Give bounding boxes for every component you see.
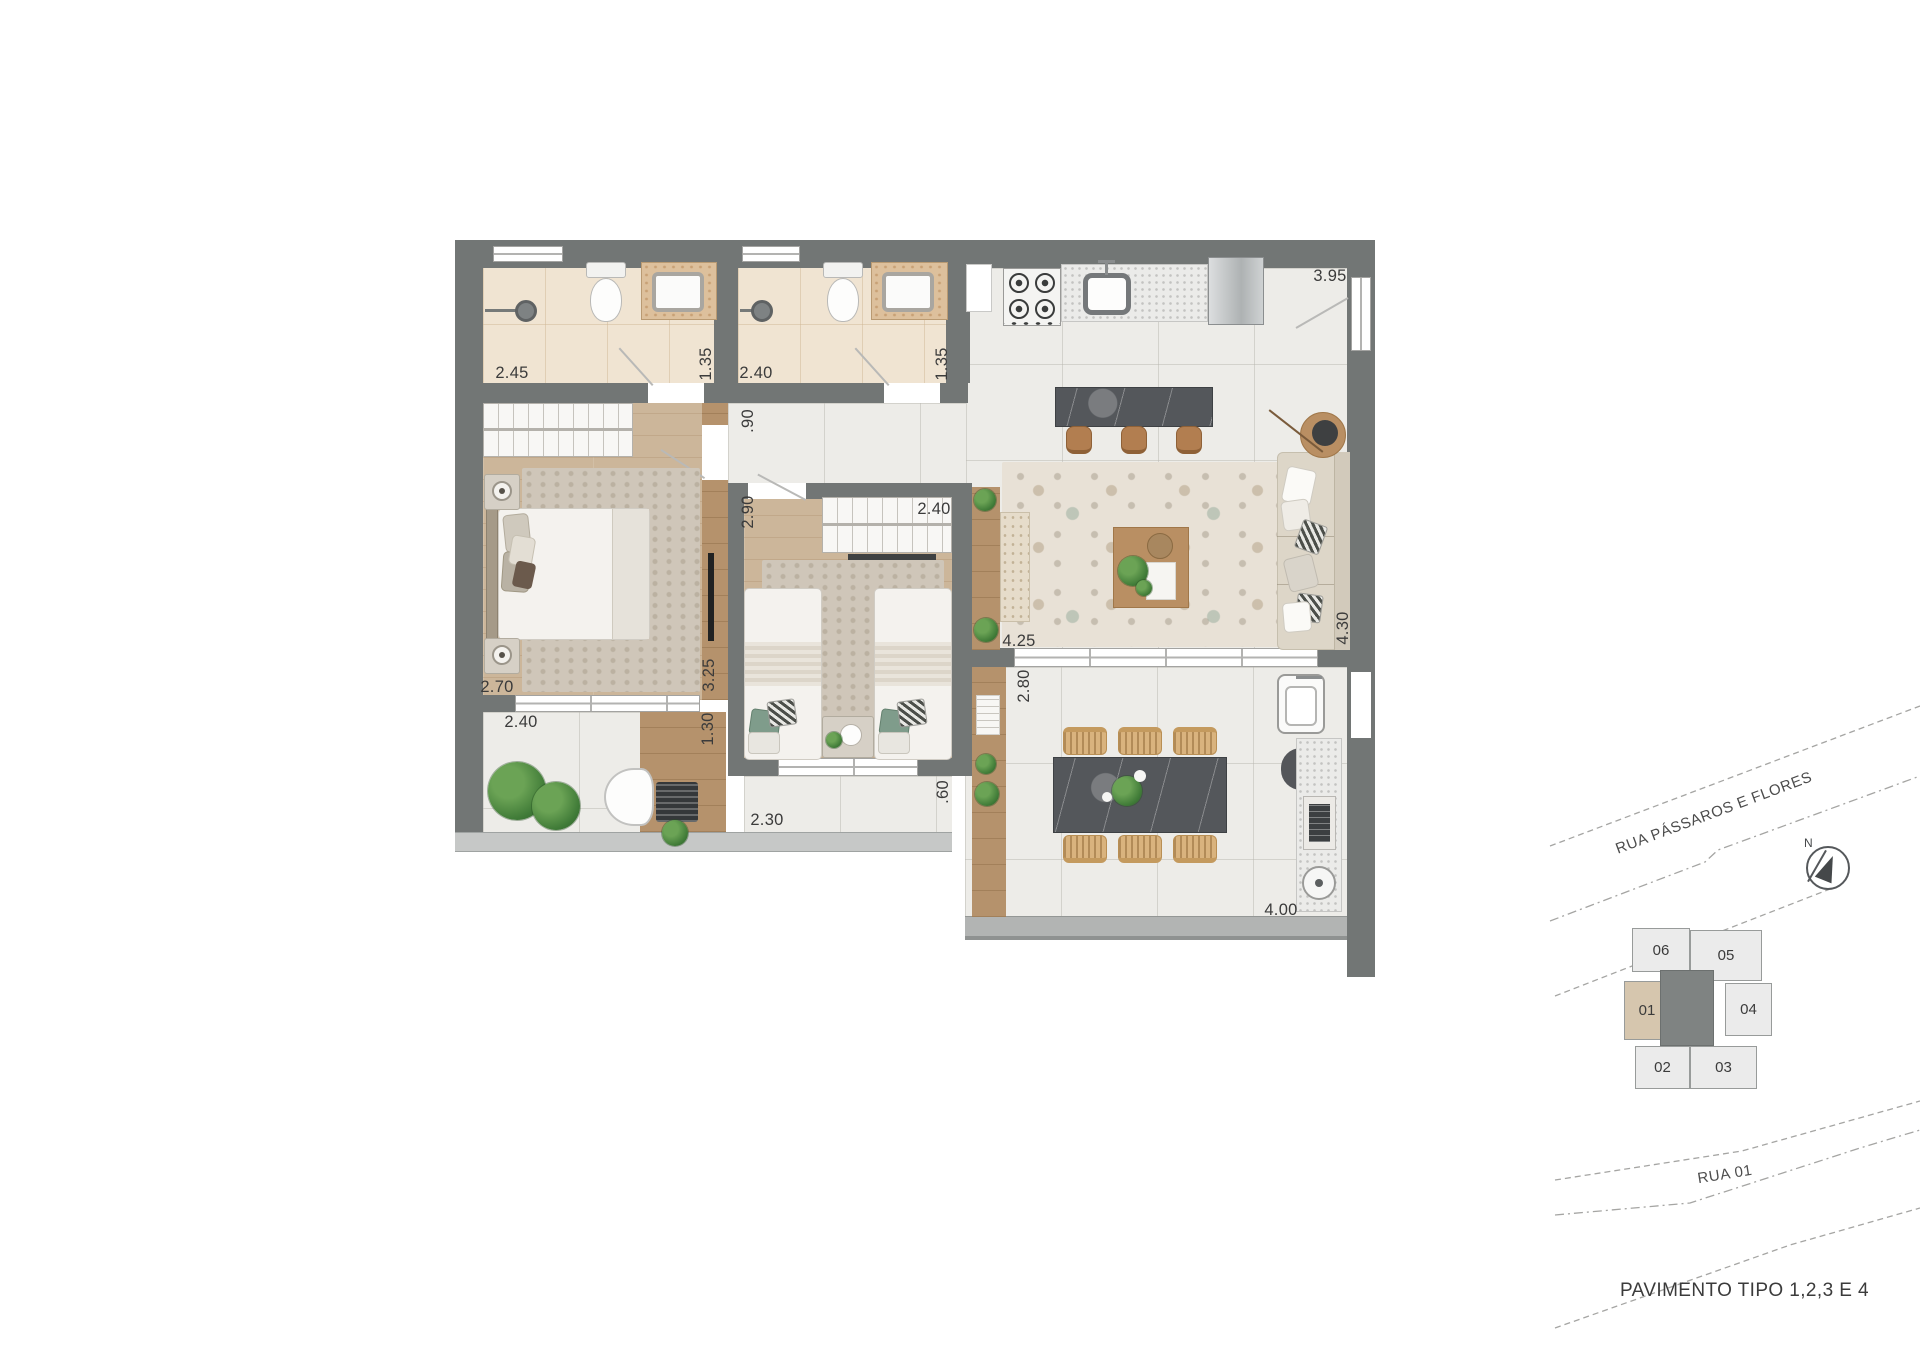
floor-plan-page: 2.45 1.35 2.40 1.35 3.95 .90 2.90 2.40 2… [0, 0, 1920, 1356]
dining-chair [1173, 727, 1217, 755]
coffee-table-tray [1147, 533, 1173, 559]
key-unit-01-label: 01 [1639, 1002, 1656, 1019]
wall-bedroom1-bottom-left [483, 695, 515, 712]
dimension-label-balcony2-depth: .60 [933, 769, 953, 815]
bedroom1-wardrobe [483, 403, 633, 457]
dimension-label-bedroom1-depth: 3.25 [699, 652, 719, 698]
toilet [823, 262, 863, 278]
coffee-table-books [1146, 562, 1176, 600]
key-unit-02-label: 02 [1654, 1059, 1671, 1076]
dimension-label-kitchen-length: 3.95 [1307, 266, 1353, 286]
shower-arm [485, 309, 517, 312]
barbecue-grate [1309, 804, 1330, 842]
dining-chair [1063, 835, 1107, 863]
dimension-label-office-depth: 1.30 [698, 706, 718, 752]
terrace-edge-line [965, 936, 1347, 940]
bench [1000, 512, 1030, 622]
desk-plant [662, 820, 688, 846]
dining-chair [1118, 727, 1162, 755]
bed-pillow-checked [896, 698, 927, 728]
toilet-bowl [590, 278, 622, 322]
kitchen-faucet-bar [1098, 260, 1115, 263]
shower-head [751, 300, 773, 322]
deck-plant [975, 782, 999, 806]
bed-pillow [878, 732, 910, 754]
dimension-label-balcony2-width: 2.30 [744, 810, 790, 830]
key-unit-03-label: 03 [1715, 1059, 1732, 1076]
cooktop-knobs [1004, 319, 1060, 326]
building-key-plan: 06 05 01 04 02 03 [1620, 926, 1780, 1096]
kitchen-shaft-column [966, 264, 992, 312]
bed-pillow [748, 732, 780, 754]
dining-flowers [1102, 792, 1112, 802]
dimension-label-bath1-depth: 1.35 [696, 341, 716, 387]
dimension-label-terrace-width: 4.00 [1258, 900, 1304, 920]
single-bed-runner [745, 642, 821, 686]
nightstand-lamp [492, 645, 512, 665]
bed-headboard [486, 506, 498, 642]
dimension-label-bath2-depth: 1.35 [932, 341, 952, 387]
key-unit-04-label: 04 [1740, 1001, 1757, 1018]
nightstand-plant [826, 732, 842, 748]
dimension-label-bath2-width: 2.40 [733, 363, 779, 383]
dimension-label-bedroom1-width: 2.70 [474, 677, 520, 697]
round-basin-drain [1315, 879, 1323, 887]
dimension-label-living-width: 4.25 [996, 631, 1042, 651]
key-unit-04: 04 [1725, 983, 1772, 1036]
dining-chair [1118, 835, 1162, 863]
bedroom1-window [515, 695, 700, 712]
dimension-label-bath1-width: 2.45 [489, 363, 535, 383]
apartment-floor-plan: 2.45 1.35 2.40 1.35 3.95 .90 2.90 2.40 2… [0, 0, 1500, 1356]
sideboard-plant [974, 618, 998, 642]
cooktop [1003, 268, 1061, 326]
terrace-right-opening [1351, 672, 1371, 738]
sideboard-plant [974, 489, 996, 511]
shower-head [515, 300, 537, 322]
deck-plant [976, 754, 996, 774]
entry-door-opening [1351, 277, 1371, 351]
floor-type-caption: PAVIMENTO TIPO 1,2,3 E 4 [1620, 1280, 1869, 1302]
sofa-pillow [1282, 601, 1313, 633]
laptop [656, 782, 698, 822]
dimension-label-terrace-depth: 2.80 [1014, 663, 1034, 709]
nightstand-lamp [492, 481, 512, 501]
key-unit-05-label: 05 [1718, 947, 1735, 964]
dining-chair [1173, 835, 1217, 863]
laundry-sink-basin [1285, 686, 1317, 726]
wall-bedroom2-right [952, 483, 972, 776]
key-unit-06: 06 [1632, 928, 1690, 972]
bed-pillow-checked [766, 698, 797, 728]
vanity-sink-basin [652, 272, 704, 312]
dimension-label-living-depth: 4.30 [1333, 605, 1353, 651]
kitchen-island [1055, 387, 1213, 427]
refrigerator [1208, 257, 1264, 325]
bedroom1-door-opening [702, 425, 728, 480]
island-stool [1066, 426, 1092, 454]
bathroom1-window [493, 246, 563, 262]
island-stool [1176, 426, 1202, 454]
floor-plant-large [532, 782, 580, 830]
site-key-plan: RUA PÁSSAROS E FLORES RUA 01 N 06 05 01 … [1490, 690, 1920, 1356]
single-bed-runner [875, 642, 951, 686]
compass: N [1796, 836, 1856, 896]
toilet [586, 262, 626, 278]
bed-runner [612, 509, 649, 639]
wall-bedroom2-bottom-left [728, 758, 778, 776]
tv-bedroom1 [708, 553, 714, 641]
dimension-label-hall-width: .90 [738, 398, 758, 444]
bathroom2-window [742, 246, 800, 262]
island-stool [1121, 426, 1147, 454]
dining-flowers [1134, 770, 1146, 782]
toilet-bowl [827, 278, 859, 322]
arc-lamp-shade [1312, 420, 1338, 446]
key-unit-03: 03 [1690, 1046, 1757, 1089]
laundry-faucet [1296, 676, 1322, 679]
vanity-sink-basin [882, 272, 934, 312]
kitchen-sink [1083, 273, 1131, 315]
nightstand-tray [840, 724, 862, 746]
bedroom2-window [778, 758, 918, 776]
dining-chair [1063, 727, 1107, 755]
parapet-bedroom2-balcony [728, 832, 952, 852]
hall-floor [728, 403, 968, 483]
key-unit-06-label: 06 [1653, 942, 1670, 959]
key-unit-02: 02 [1635, 1046, 1690, 1089]
coffee-table-plant-small [1136, 580, 1152, 596]
compass-north-label: N [1804, 836, 1813, 850]
dimension-label-bedroom2-entry: 2.90 [738, 489, 758, 535]
dimension-label-bedroom2-width: 2.40 [911, 499, 957, 519]
dimension-label-office-width: 2.40 [498, 712, 544, 732]
magazine-holder [976, 695, 1000, 735]
wall-left [455, 240, 483, 852]
living-sliding-door [1014, 648, 1318, 667]
key-plan-core [1660, 970, 1714, 1046]
